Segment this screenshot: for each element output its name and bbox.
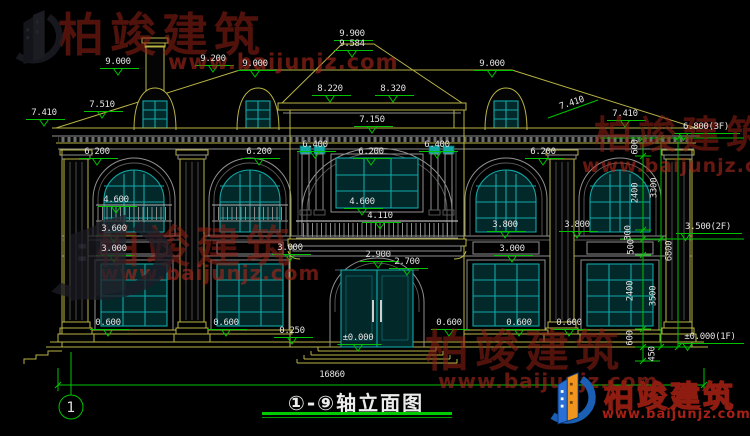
dormer-window — [485, 88, 527, 130]
entry-steps — [297, 347, 457, 363]
central-bay — [288, 110, 466, 363]
left-steps — [24, 351, 62, 364]
title-underline-thick — [262, 412, 452, 415]
cad-elevation-canvas: 柏竣建筑 www.baijunjz.com 柏竣建筑 www.baijunjz.… — [0, 0, 750, 436]
dormer-window — [134, 88, 176, 130]
chimney — [142, 38, 168, 92]
title-underline-thin — [262, 417, 452, 418]
juliet-rail — [212, 205, 288, 221]
brand-logo: 柏竣建筑 www.baijunjz.com — [536, 370, 602, 436]
grid-bubble-label: 1 — [67, 400, 76, 416]
roof — [56, 38, 696, 130]
dormer-window — [237, 88, 279, 130]
tower-roof — [282, 44, 462, 103]
balcony — [288, 221, 466, 259]
juliet-rail — [96, 205, 172, 221]
brand-logo-icon — [536, 370, 602, 434]
elevation-drawing — [0, 0, 750, 436]
brand-logo-url: www.baijunjz.com — [602, 407, 750, 422]
